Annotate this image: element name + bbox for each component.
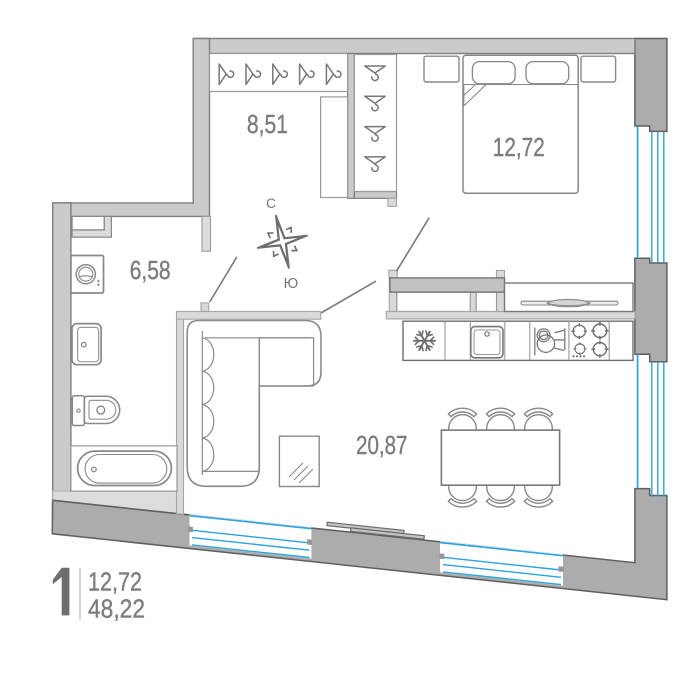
- svg-text:6,58: 6,58: [130, 255, 171, 285]
- svg-text:20,87: 20,87: [356, 430, 408, 460]
- svg-text:8,51: 8,51: [247, 109, 288, 139]
- svg-text:12,72: 12,72: [493, 132, 545, 162]
- svg-text:С: С: [266, 196, 276, 211]
- svg-text:48,22: 48,22: [88, 594, 145, 624]
- svg-text:Ю: Ю: [284, 276, 299, 292]
- svg-text:12,72: 12,72: [88, 567, 142, 597]
